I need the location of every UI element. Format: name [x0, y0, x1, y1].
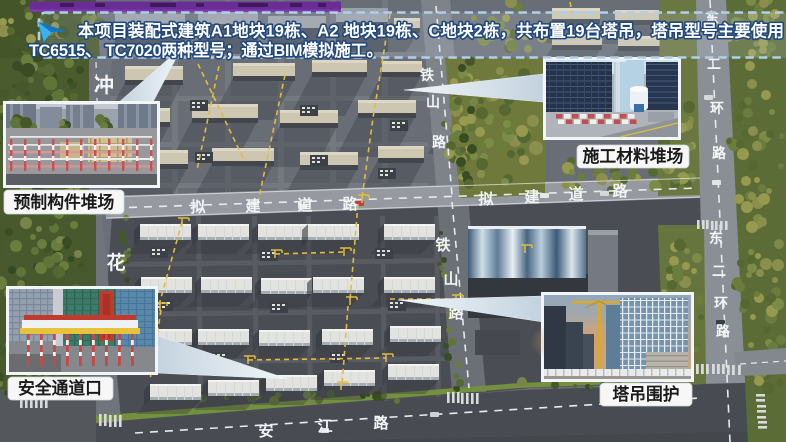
svg-text:江: 江 [317, 417, 332, 435]
svg-text:东: 东 [709, 230, 723, 246]
svg-text:道: 道 [297, 196, 312, 214]
svg-text:二: 二 [712, 263, 726, 279]
svg-text:建: 建 [245, 197, 261, 215]
svg-text:花: 花 [106, 251, 125, 274]
svg-text:安全通道口: 安全通道口 [18, 378, 102, 398]
svg-text:预制构件堆场: 预制构件堆场 [14, 192, 115, 212]
svg-text:本项目装配式建筑A1地块19栋、A2 地块19栋、C地块2栋: 本项目装配式建筑A1地块19栋、A2 地块19栋、C地块2栋，共布置19台塔吊，… [78, 21, 784, 41]
svg-text:路: 路 [712, 145, 727, 161]
svg-text:安: 安 [258, 422, 273, 440]
svg-text:冲: 冲 [94, 74, 114, 97]
svg-text:施工材料堆场: 施工材料堆场 [583, 146, 684, 166]
svg-text:山: 山 [426, 94, 440, 110]
svg-text:路: 路 [432, 134, 447, 150]
svg-text:道: 道 [568, 185, 583, 203]
svg-text:铁: 铁 [420, 67, 434, 83]
svg-text:铁: 铁 [435, 236, 450, 254]
svg-text:路: 路 [612, 182, 628, 200]
svg-text:塔吊围护: 塔吊围护 [612, 384, 679, 404]
svg-text:TC6515、 TC7020两种型号；通过BIM模拟施工。: TC6515、 TC7020两种型号；通过BIM模拟施工。 [29, 40, 383, 60]
svg-text:环: 环 [710, 100, 724, 116]
svg-text:拟: 拟 [190, 198, 205, 216]
svg-text:建: 建 [524, 188, 540, 206]
svg-text:路: 路 [342, 195, 358, 213]
svg-text:路: 路 [373, 414, 389, 432]
svg-text:路: 路 [716, 323, 731, 339]
svg-text:拟: 拟 [478, 190, 493, 208]
svg-text:环: 环 [714, 295, 728, 311]
svg-text:山: 山 [443, 271, 458, 288]
